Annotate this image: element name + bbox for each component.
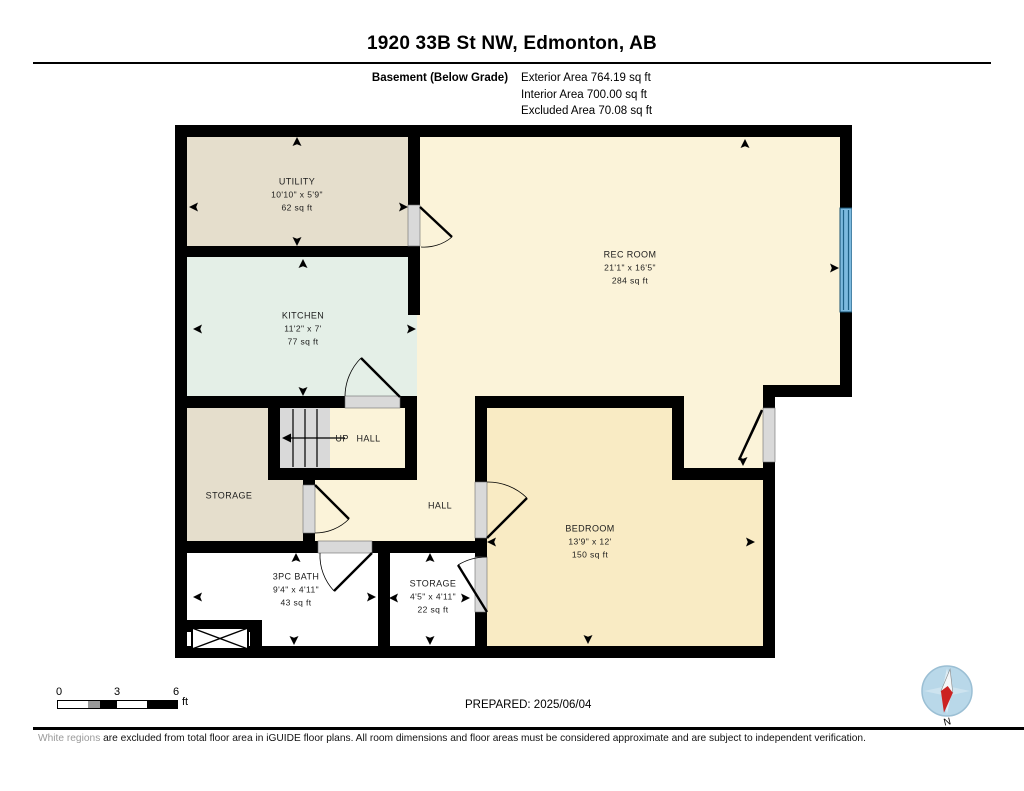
floor-plan: UTILITY 10'10" x 5'9" 62 sq ft KITCHEN 1… <box>175 125 852 658</box>
room-label-storage-lower: STORAGE 4'5" x 4'11" 22 sq ft <box>410 578 457 617</box>
scale-tick-0: 0 <box>56 686 62 698</box>
scale-bar: 0 3 6 ft <box>55 686 255 718</box>
exterior-area: Exterior Area 764.19 sq ft <box>521 70 652 87</box>
footer-divider <box>33 727 1024 730</box>
prepared-date: PREPARED: 2025/06/04 <box>465 699 591 711</box>
disclaimer-text: White regions are excluded from total fl… <box>38 733 866 744</box>
room-label-storage-upper: STORAGE <box>206 490 253 503</box>
room-label-utility: UTILITY 10'10" x 5'9" 62 sq ft <box>271 176 323 215</box>
floor-summary: Basement (Below Grade) Exterior Area 764… <box>0 70 1024 120</box>
page-title: 1920 33B St NW, Edmonton, AB <box>0 33 1024 55</box>
disclaimer-body: are excluded from total floor area in iG… <box>100 733 866 744</box>
compass-north-label: N <box>943 716 953 727</box>
room-label-hall: HALL <box>428 500 452 513</box>
floor-name: Basement (Below Grade) <box>372 70 508 86</box>
room-label-rec-room: REC ROOM 21'1" x 16'5" 284 sq ft <box>604 249 657 288</box>
excluded-area-marker <box>192 628 248 649</box>
room-label-up-hall: UP HALL <box>335 433 380 446</box>
room-label-kitchen: KITCHEN 11'2" x 7' 77 sq ft <box>282 310 324 349</box>
room-label-bath: 3PC BATH 9'4" x 4'11" 43 sq ft <box>273 571 320 610</box>
area-summary: Exterior Area 764.19 sq ft Interior Area… <box>521 70 652 120</box>
room-label-bedroom: BEDROOM 13'9" x 12' 150 sq ft <box>565 523 614 562</box>
scale-tick-6: 6 <box>173 686 179 698</box>
interior-area: Interior Area 700.00 sq ft <box>521 87 652 104</box>
scale-bar-segments <box>57 700 178 709</box>
compass-icon: N <box>919 663 975 727</box>
excluded-area: Excluded Area 70.08 sq ft <box>521 103 652 120</box>
title-divider <box>33 62 991 64</box>
disclaimer-highlight: White regions <box>38 733 100 744</box>
rec-alcove-area <box>684 386 763 469</box>
window <box>840 208 852 312</box>
scale-unit: ft <box>182 696 188 708</box>
floor-plan-page: 1920 33B St NW, Edmonton, AB Basement (B… <box>0 0 1024 791</box>
scale-tick-3: 3 <box>114 686 120 698</box>
